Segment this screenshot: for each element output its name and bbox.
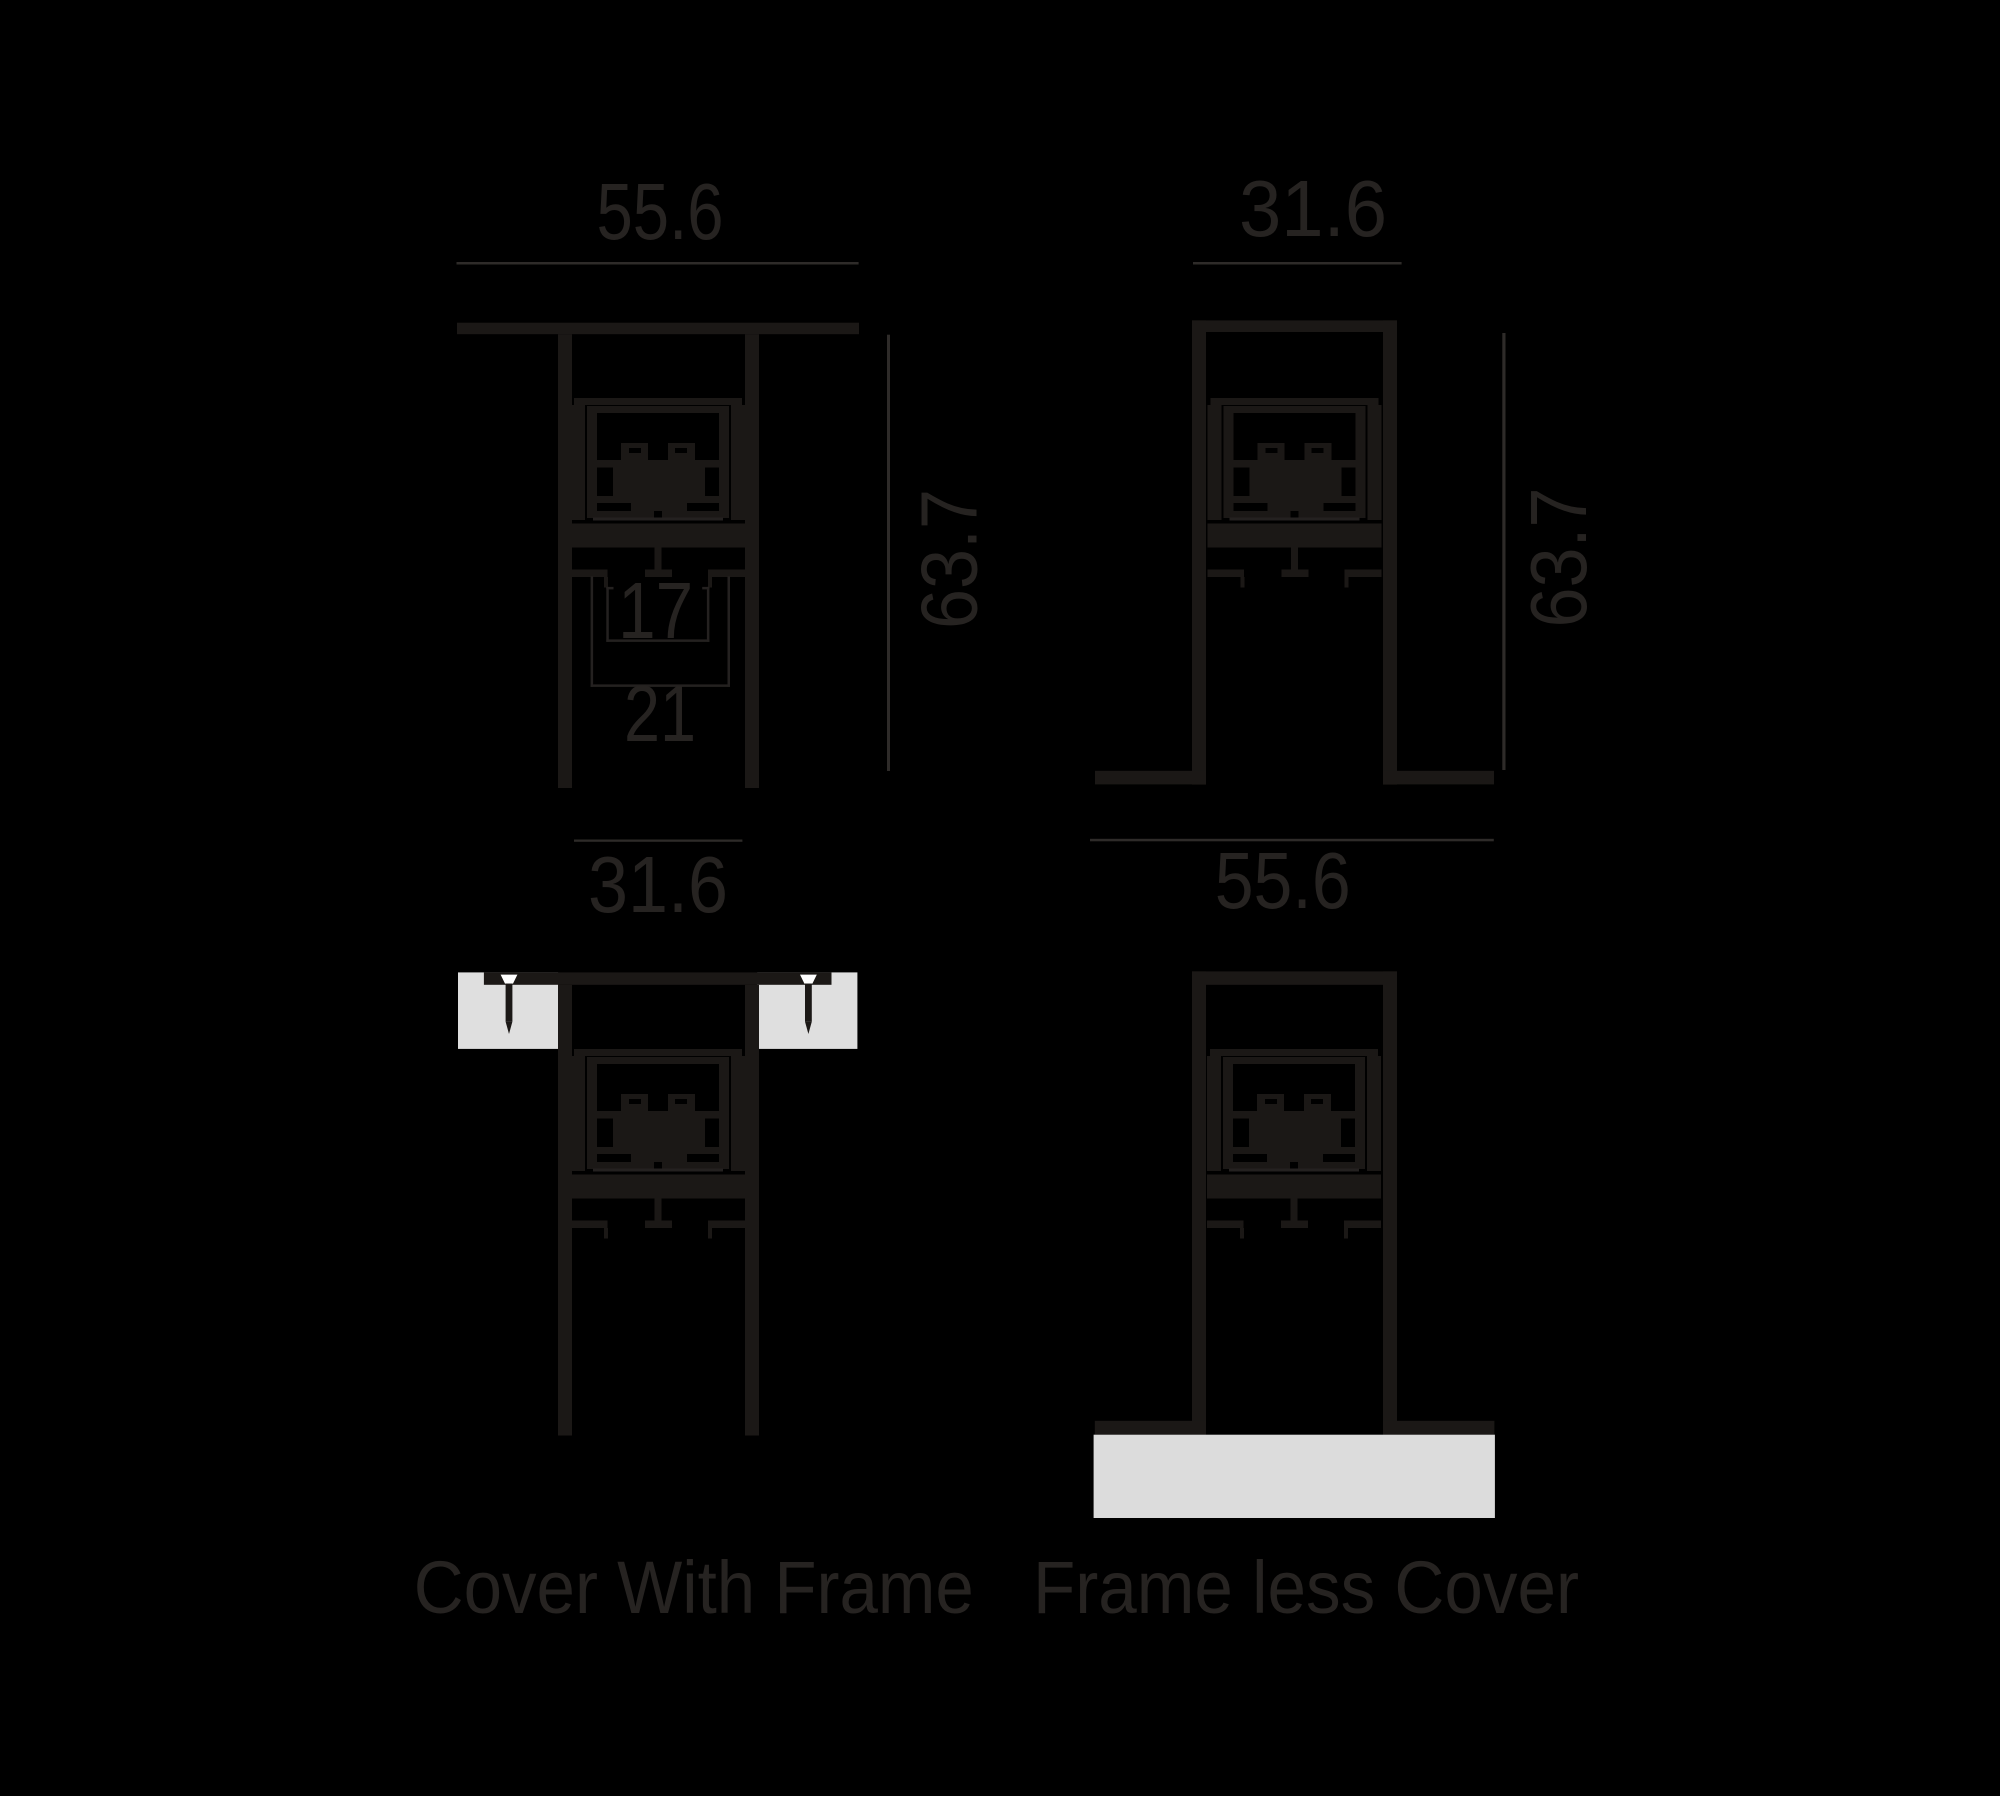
svg-text:31.6: 31.6 [588,840,728,929]
svg-text:Cover With Frame: Cover With Frame [414,1546,974,1629]
svg-text:21: 21 [624,669,696,758]
svg-text:Frame less Cover: Frame less Cover [1033,1546,1579,1629]
svg-text:17: 17 [618,566,693,655]
svg-text:63.7: 63.7 [905,489,994,629]
svg-text:55.6: 55.6 [597,167,724,256]
svg-text:31.6: 31.6 [1239,164,1387,253]
svg-text:55.6: 55.6 [1215,836,1351,925]
svg-text:63.7: 63.7 [1514,488,1603,628]
